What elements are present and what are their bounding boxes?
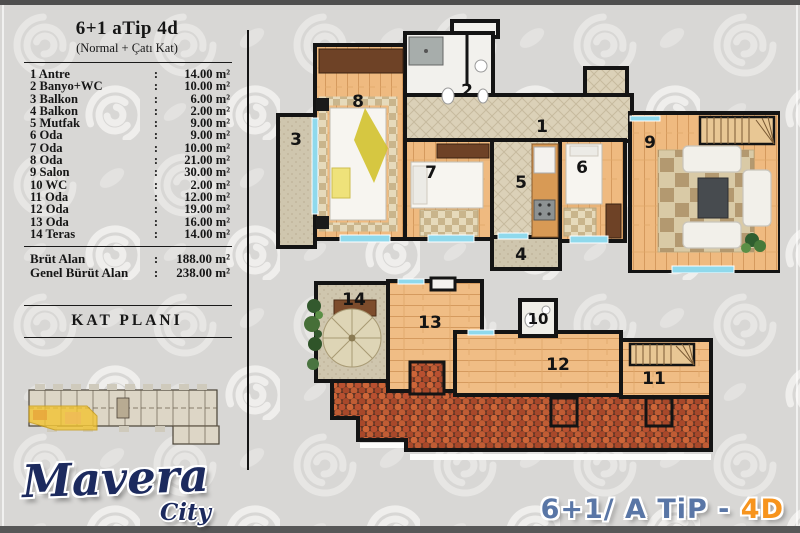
- room-label-12: 12: [546, 355, 570, 375]
- room-label-10: 10: [528, 310, 549, 328]
- brand-logo: Mavera City: [22, 452, 252, 532]
- room-antre-1: [405, 95, 632, 141]
- table-row: 13 Oda:16.00 m²: [30, 216, 230, 228]
- room-label-3: 3: [290, 130, 302, 150]
- table-row: 14 Teras:14.00 m²: [30, 228, 230, 240]
- room-label-4: 4: [515, 245, 527, 265]
- total-row-brut: Brüt Alan:188.00 m²: [30, 252, 230, 266]
- info-panel: 6+1 aTip 4d (Normal + Çatı Kat) 1 Antre:…: [14, 18, 240, 452]
- room-label-8: 8: [352, 92, 364, 112]
- right-edge-highlight: [796, 5, 798, 526]
- room-label-7: 7: [425, 163, 437, 183]
- lower-floor-plan: 14 13 10 12 11: [298, 272, 718, 467]
- left-edge-highlight: [2, 5, 4, 526]
- panel-divider-line: [247, 30, 249, 470]
- unit-type-title: 6+1 aTip 4d: [14, 18, 240, 40]
- room-label-9: 9: [644, 133, 656, 153]
- room-label-2: 2: [461, 81, 473, 101]
- building-key-plan: [25, 372, 229, 452]
- table-row: 2 Banyo+WC:10.00 m²: [30, 80, 230, 92]
- room-label-6: 6: [576, 158, 588, 178]
- table-row: 9 Salon:30.00 m²: [30, 166, 230, 178]
- room-area-table: 1 Antre:14.00 m² 2 Banyo+WC:10.00 m² 3 B…: [30, 68, 230, 240]
- stairs-upper: [700, 117, 774, 144]
- upper-floor-plan: 3 8 2 1 7 5 4 6 9: [270, 8, 780, 273]
- room-oda-12: [455, 332, 621, 395]
- room-label-14: 14: [342, 290, 366, 310]
- kat-plani-section: KAT PLANI: [14, 305, 240, 338]
- kat-plani-heading: KAT PLANI: [14, 311, 240, 331]
- coffee-table: [698, 178, 728, 218]
- room-label-1: 1: [536, 117, 548, 137]
- unit-type-footer-title: 6+1/ A TiP - 4D: [541, 494, 784, 525]
- logo-city: City: [160, 499, 211, 526]
- type-title-suffix: 4D: [741, 494, 784, 525]
- divider: [24, 305, 232, 306]
- room-label-5: 5: [515, 173, 527, 193]
- type-title-prefix: 6+1/ A TiP -: [541, 494, 741, 525]
- table-row: 6 Oda:9.00 m²: [30, 129, 230, 141]
- room-label-13: 13: [418, 313, 442, 333]
- divider: [24, 337, 232, 338]
- stair-core: [117, 398, 129, 418]
- stairs-lower: [630, 344, 694, 365]
- divider: [24, 246, 232, 247]
- top-border-bar: [0, 0, 800, 5]
- unit-type-subtitle: (Normal + Çatı Kat): [14, 41, 240, 56]
- divider: [24, 62, 232, 63]
- total-row-genel: Genel Bürüt Alan:238.00 m²: [30, 266, 230, 280]
- brochure-page: 6+1 aTip 4d (Normal + Çatı Kat) 1 Antre:…: [0, 0, 800, 533]
- table-row: 12 Oda:19.00 m²: [30, 203, 230, 215]
- chimney-box: [431, 278, 455, 290]
- room-label-11: 11: [642, 369, 666, 389]
- totals-block: Brüt Alan:188.00 m² Genel Bürüt Alan:238…: [30, 252, 230, 279]
